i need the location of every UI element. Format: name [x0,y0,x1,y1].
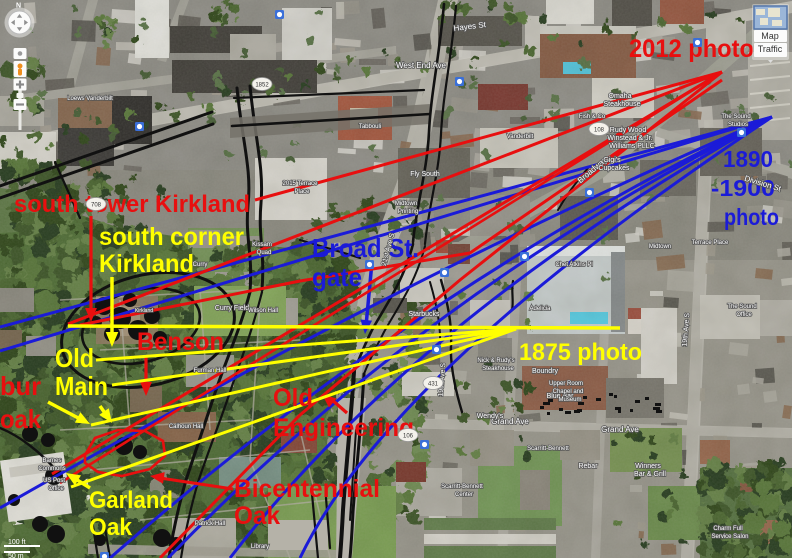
svg-text:Williams PLLC: Williams PLLC [609,143,655,150]
svg-text:Barnes: Barnes [42,458,61,464]
svg-text:Boundry: Boundry [532,368,559,375]
svg-text:1852: 1852 [255,83,269,89]
svg-text:West End Ave: West End Ave [396,61,447,70]
svg-text:The Sound: The Sound [727,304,756,310]
svg-text:Gigi's: Gigi's [603,157,621,164]
svg-text:Starbucks: Starbucks [408,311,440,318]
svg-text:Office: Office [736,312,752,318]
svg-text:Steakhouse: Steakhouse [604,101,641,108]
svg-text:photo: photo [724,204,779,230]
svg-text:Fish & Co: Fish & Co [579,114,606,120]
svg-text:Upper Room: Upper Room [549,381,583,387]
svg-text:Benson: Benson [137,328,224,356]
svg-text:Kissam: Kissam [252,242,272,248]
svg-text:Bicentennial: Bicentennial [234,475,380,503]
svg-text:Rudy Wood: Rudy Wood [610,127,647,134]
svg-text:Museum: Museum [558,397,581,403]
svg-text:Grand Ave: Grand Ave [601,425,639,434]
svg-text:US Post: US Post [43,478,65,484]
svg-text:50 m: 50 m [8,553,24,558]
svg-text:2015 Terrace: 2015 Terrace [283,181,319,187]
svg-text:Engineering: Engineering [273,414,414,442]
svg-text:oak: oak [0,404,41,434]
svg-text:Place: Place [294,189,310,195]
svg-text:The Sound: The Sound [721,114,750,120]
svg-text:Rebar: Rebar [578,463,598,470]
svg-text:Vanderbilt: Vanderbilt [507,134,534,140]
svg-text:Traffic: Traffic [758,44,783,54]
svg-text:Printing: Printing [398,209,418,215]
svg-text:Calhoun Hall: Calhoun Hall [169,424,203,430]
svg-text:bur: bur [0,371,41,401]
svg-text:Wilson Hall: Wilson Hall [248,308,278,314]
svg-text:Main: Main [55,371,108,401]
svg-text:south tower Kirkland: south tower Kirkland [14,191,250,218]
svg-text:2012 photo: 2012 photo [629,35,754,63]
svg-text:1890: 1890 [723,146,773,172]
svg-text:Kirkland: Kirkland [135,308,153,314]
svg-text:Chapel and: Chapel and [553,389,584,395]
svg-text:Fly South: Fly South [410,171,440,178]
svg-text:Studios: Studios [728,122,748,128]
svg-text:431: 431 [428,382,439,388]
svg-text:Chet Atkins Pl: Chet Atkins Pl [555,262,592,268]
svg-text:Scarritt-Bennett: Scarritt-Bennett [527,446,569,452]
svg-text:1875 photo: 1875 photo [519,339,642,366]
svg-text:Curry Field: Curry Field [215,305,249,312]
svg-text:Tabbouli: Tabbouli [359,124,381,130]
svg-text:108: 108 [594,128,605,134]
svg-text:Loews Vanderbilt: Loews Vanderbilt [67,96,113,102]
svg-text:Omaha: Omaha [609,93,632,100]
svg-text:Commons: Commons [38,466,65,472]
svg-text:Old: Old [55,343,94,373]
svg-text:Bar & Grill: Bar & Grill [634,471,666,478]
svg-text:Center: Center [455,492,473,498]
svg-text:Oak: Oak [89,514,133,541]
svg-text:Winners: Winners [635,463,661,470]
svg-text:Curry: Curry [193,262,208,268]
svg-text:Service Salon: Service Salon [711,534,748,540]
svg-text:Patrick Hall: Patrick Hall [195,521,225,527]
svg-text:Adelicia: Adelicia [529,306,551,312]
svg-text:106: 106 [403,434,414,440]
svg-text:Nick & Rudy's: Nick & Rudy's [477,358,514,364]
svg-text:south corner: south corner [99,223,244,251]
svg-text:Library: Library [251,544,269,550]
svg-text:Midtown: Midtown [649,244,671,250]
svg-text:Map: Map [761,31,779,41]
svg-text:Garland: Garland [89,487,173,514]
svg-text:100 ft: 100 ft [8,539,26,546]
svg-text:Wendy's: Wendy's [477,413,504,420]
svg-text:Oak: Oak [234,502,280,530]
svg-text:gate: gate [312,262,362,292]
svg-text:Cupcakes: Cupcakes [598,165,630,172]
svg-text:708: 708 [91,203,102,209]
svg-text:Steakhouse: Steakhouse [482,366,514,372]
svg-text:Quad: Quad [257,250,272,256]
svg-text:Office: Office [48,486,64,492]
svg-text:N: N [16,3,21,10]
svg-text:Broad St.: Broad St. [312,233,419,263]
svg-text:Kirkland: Kirkland [99,250,194,278]
svg-text:Furman Hall: Furman Hall [194,368,227,374]
svg-text:Scarritt-Bennett: Scarritt-Bennett [441,484,483,490]
svg-text:Terrace Place: Terrace Place [692,240,729,246]
svg-text:Charm Full: Charm Full [713,526,742,532]
svg-text:Winstead & Jr.: Winstead & Jr. [607,135,652,142]
svg-text:Midtown: Midtown [395,201,417,207]
svg-text:Old: Old [273,384,313,412]
